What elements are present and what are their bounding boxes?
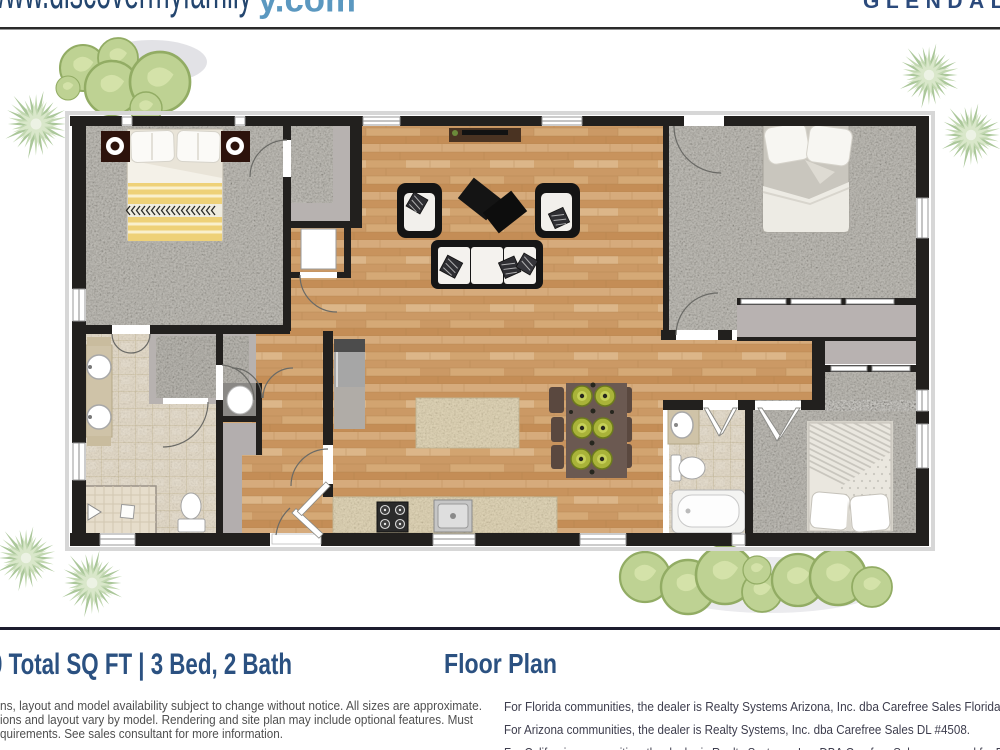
- svg-text:For California communities, th: For California communities, the dealer i…: [504, 746, 1000, 750]
- svg-text:y.com: y.com: [258, 0, 356, 20]
- svg-text:GLENDALE: GLENDALE: [863, 0, 1000, 13]
- svg-text:For Florida communities, the d: For Florida communities, the dealer is R…: [504, 700, 1000, 714]
- svg-text:For Arizona communities, the d: For Arizona communities, the dealer is R…: [504, 723, 970, 737]
- svg-text:ions and layout vary by model.: ions and layout vary by model. Rendering…: [0, 713, 473, 727]
- svg-text:0 Total SQ FT | 3 Bed, 2 Bath: 0 Total SQ FT | 3 Bed, 2 Bath: [0, 648, 292, 681]
- svg-text:ns, layout and model availabil: ns, layout and model availability subjec…: [0, 699, 482, 713]
- svg-text:www.discovermyfamily: www.discovermyfamily: [0, 0, 252, 18]
- svg-text:quirements. See sales consulta: quirements. See sales consultant for mor…: [0, 727, 283, 741]
- svg-text:Floor Plan: Floor Plan: [444, 648, 557, 679]
